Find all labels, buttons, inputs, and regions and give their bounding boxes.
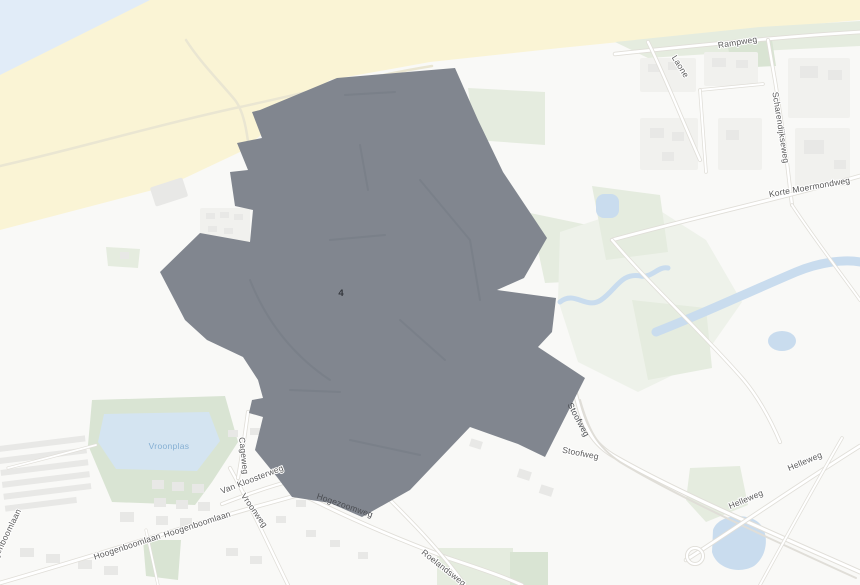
zone-label: 4 <box>338 288 344 299</box>
label-vroonplas: Vroonplas <box>149 441 190 451</box>
map-canvas[interactable]: 4 Rampweg Laone Scharendijkseweg Korte M… <box>0 0 860 585</box>
